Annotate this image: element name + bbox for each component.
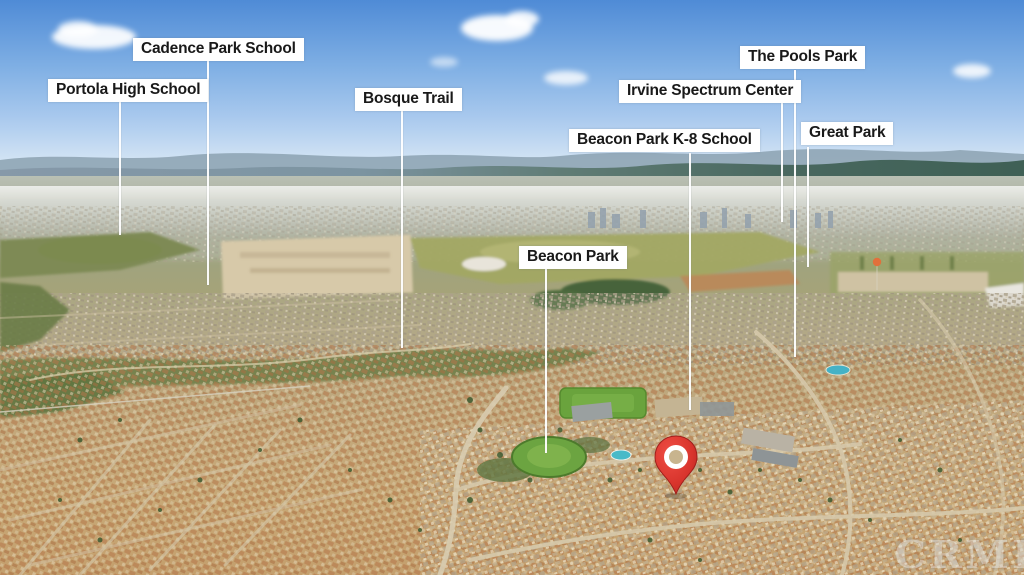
leader-line-beacon-park-k8-school [689,153,691,410]
leader-line-beacon-park [545,268,547,453]
callout-bosque-trail: Bosque Trail [355,88,462,111]
crmls-watermark: CRMLS [895,532,1024,575]
aerial-photo: Portola High School Cadence Park School … [0,0,1024,575]
leader-line-portola-high-school [119,102,121,235]
leader-line-irvine-spectrum-center [781,103,783,222]
property-location-pin [648,434,704,500]
callout-portola-high-school: Portola High School [48,79,208,102]
callout-irvine-spectrum-center: Irvine Spectrum Center [619,80,801,103]
callout-the-pools-park: The Pools Park [740,46,865,69]
callout-beacon-park-k8-school: Beacon Park K-8 School [569,129,760,152]
leader-line-bosque-trail [401,111,403,348]
leader-line-the-pools-park [794,70,796,357]
callout-great-park: Great Park [801,122,893,145]
callout-beacon-park: Beacon Park [519,246,627,269]
callout-cadence-park-school: Cadence Park School [133,38,304,61]
leader-line-great-park [807,147,809,267]
